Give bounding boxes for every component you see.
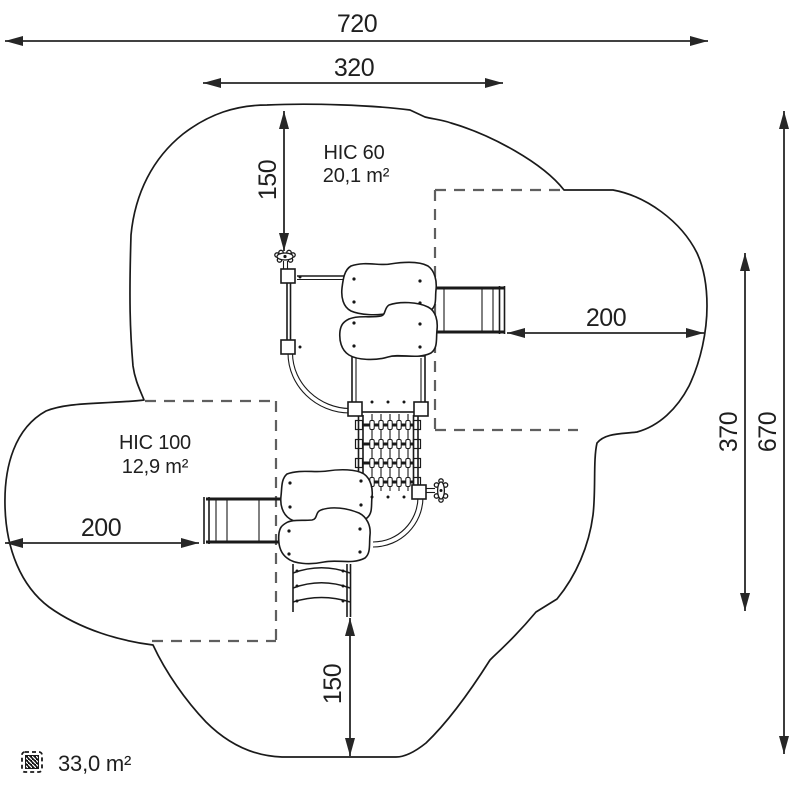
slide-right: [434, 286, 505, 334]
dimension-overall-height: 670: [754, 111, 789, 754]
dimension-left-clearance: 200: [5, 514, 199, 548]
dim-320-label: 320: [334, 54, 374, 82]
hic100-area: 12,9 m²: [122, 456, 189, 478]
safety-area-outline: [5, 104, 707, 757]
curved-pipe-upper: [288, 353, 350, 413]
play-structure: [204, 250, 505, 617]
dimension-top-clearance: 150: [254, 111, 289, 251]
hic60-label: HIC 60: [323, 142, 384, 164]
slide-left: [204, 497, 283, 544]
dim-150-bottom-label: 150: [319, 664, 347, 704]
handrail-wall: [287, 276, 344, 341]
dim-200-left-label: 200: [81, 514, 121, 542]
dimension-overall-width: 720: [5, 10, 708, 46]
total-area-label: 33,0 m²: [58, 751, 131, 776]
plan-drawing: HIC 60 20,1 m² HIC 100 12,9 m²: [0, 0, 800, 800]
steering-wheel-top: [275, 250, 295, 269]
dimension-right-clearance: 200: [507, 304, 704, 338]
dim-370-label: 370: [715, 412, 743, 452]
area-legend: 33,0 m²: [22, 751, 131, 776]
hic100-zone: HIC 100 12,9 m²: [119, 401, 276, 641]
hatched-area-icon-fill: [26, 756, 39, 769]
hic60-area: 20,1 m²: [323, 165, 390, 187]
dim-200-right-label: 200: [586, 304, 626, 332]
curved-pipe-lower: [373, 497, 423, 547]
dim-150-top-label: 150: [254, 160, 282, 200]
hic100-label: HIC 100: [119, 432, 191, 454]
steering-wheel-right: [426, 479, 448, 502]
dim-670-label: 670: [754, 412, 782, 452]
technical-drawing-page: HIC 60 20,1 m² HIC 100 12,9 m²: [0, 0, 800, 800]
dimension-inner-height: 370: [715, 253, 750, 611]
dimension-bottom-clearance: 150: [319, 618, 355, 756]
dimension-platform-width: 320: [203, 54, 503, 88]
dim-720-label: 720: [337, 10, 377, 38]
